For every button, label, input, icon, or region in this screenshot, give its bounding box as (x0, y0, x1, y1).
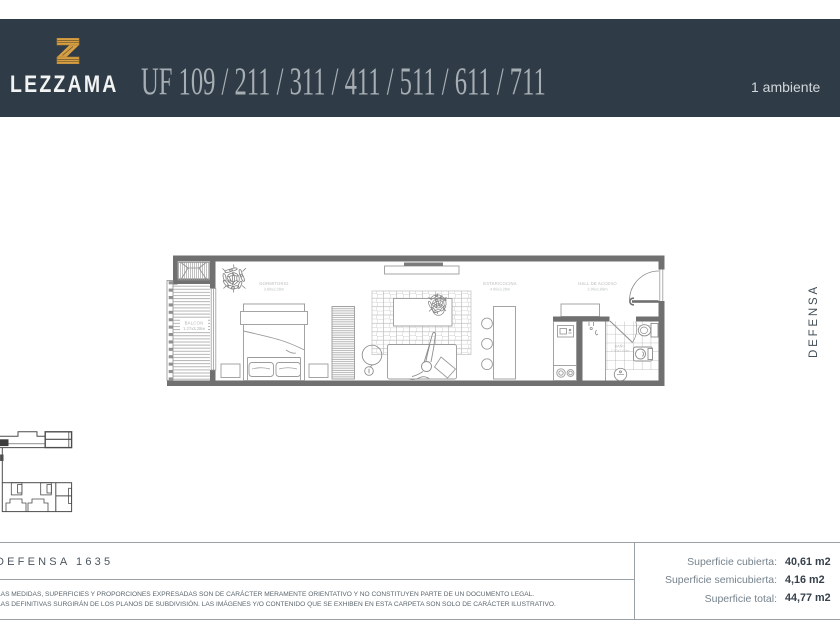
svg-text:BAÑO: BAÑO (615, 344, 626, 349)
svg-text:DORMITORIO: DORMITORIO (259, 281, 289, 286)
svg-text:3.89x3.28m: 3.89x3.28m (264, 287, 284, 292)
svg-text:HALL DE ACCESO: HALL DE ACCESO (578, 281, 617, 286)
svg-text:1.27x3.28m: 1.27x3.28m (183, 326, 205, 331)
svg-text:4.95x3.28m: 4.95x3.28m (490, 287, 510, 292)
svg-text:2.95x1.89m: 2.95x1.89m (587, 287, 607, 292)
svg-text:BALCON: BALCON (185, 321, 204, 326)
svg-text:2.30x1.60m: 2.30x1.60m (611, 349, 630, 353)
svg-text:ESTAR/COCINA: ESTAR/COCINA (483, 281, 517, 286)
